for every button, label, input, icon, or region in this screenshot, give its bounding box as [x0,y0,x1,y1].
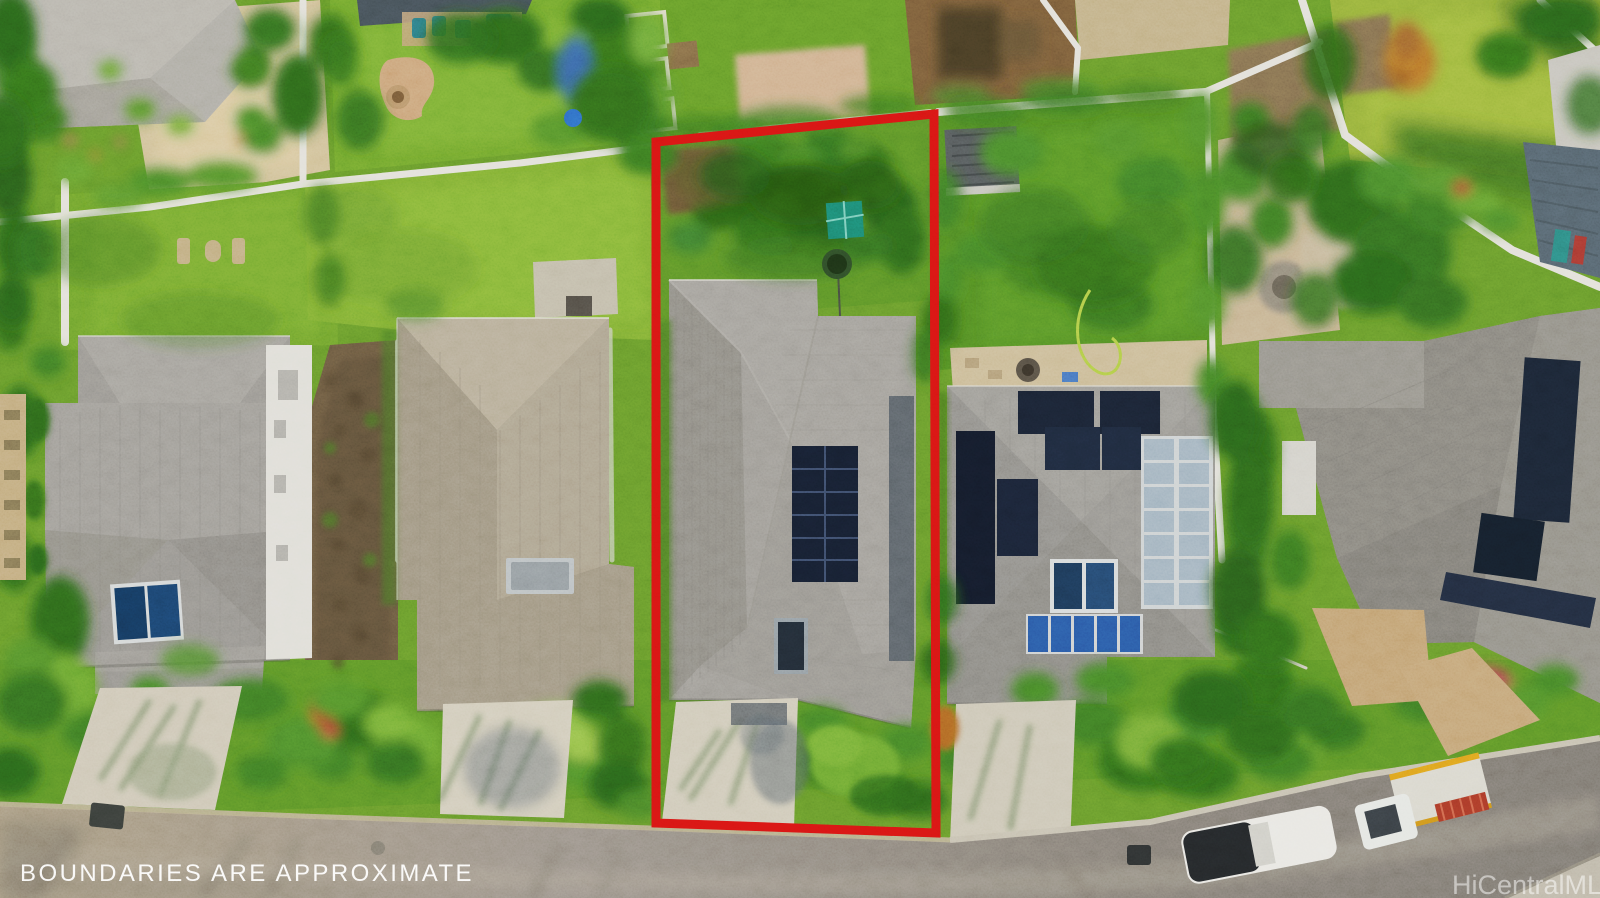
svg-text:HiCentralMLS: HiCentralMLS [1452,870,1600,898]
svg-text:BOUNDARIES ARE APPROXIMATE: BOUNDARIES ARE APPROXIMATE [20,860,474,887]
